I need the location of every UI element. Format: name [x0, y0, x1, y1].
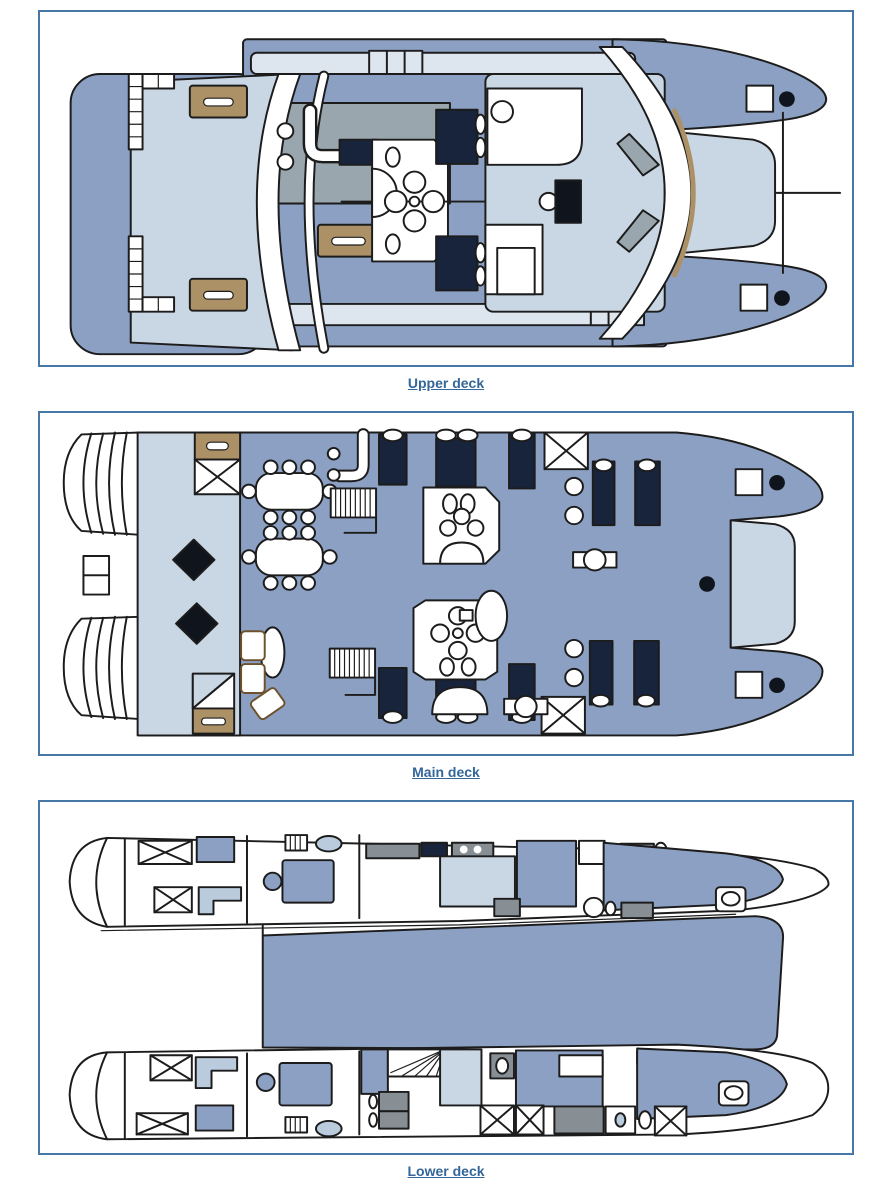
lower-bridge-deck — [263, 907, 783, 1049]
deck-figure-lower: Lower deck — [38, 800, 856, 1181]
upper-deck-link[interactable]: Upper deck — [408, 375, 484, 391]
lower-deck-link[interactable]: Lower deck — [407, 1163, 484, 1179]
upper-helm-area — [485, 74, 664, 312]
deck-figure-main: Main deck — [38, 411, 856, 782]
helm-seat — [555, 180, 581, 223]
lower-deck-plan-image — [46, 808, 846, 1147]
deck-figure-upper: Upper deck — [38, 10, 856, 393]
main-deck-link[interactable]: Main deck — [412, 764, 480, 780]
lower-port-hull — [70, 835, 829, 931]
main-deck-plan-image — [46, 419, 846, 748]
upper-deck-panel — [38, 10, 854, 367]
lower-deck-panel — [38, 800, 854, 1155]
lower-deck-caption: Lower deck — [38, 1162, 854, 1181]
lower-starboard-hull — [70, 1045, 829, 1140]
main-deck-panel — [38, 411, 854, 756]
main-deck-caption: Main deck — [38, 763, 854, 782]
upper-deck-plan-image — [46, 18, 846, 359]
main-stern-steps — [64, 433, 140, 720]
upper-deck-caption: Upper deck — [38, 374, 854, 393]
